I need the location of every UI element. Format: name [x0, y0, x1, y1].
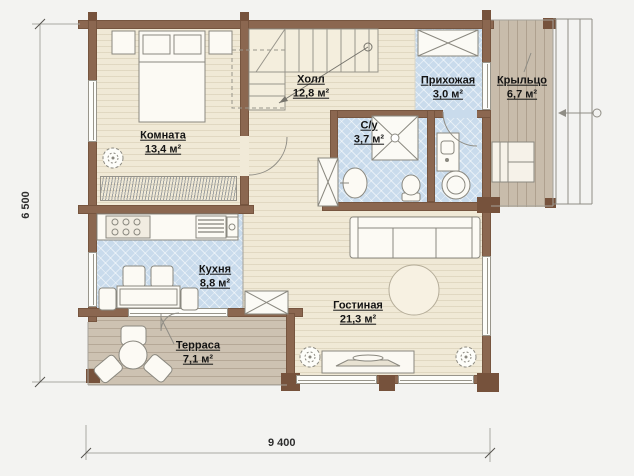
- room-area: 7,1 м²: [176, 353, 220, 367]
- wall: [322, 202, 491, 211]
- log-end: [545, 198, 556, 208]
- wall: [78, 20, 494, 29]
- floor-porch: [491, 20, 553, 207]
- floor-kitchen: [97, 210, 243, 313]
- bathroom-label: С/у 3,7 м²: [354, 119, 384, 148]
- window: [398, 375, 474, 384]
- wall: [427, 110, 435, 202]
- porch-label: Крыльцо 6,7 м²: [497, 74, 547, 103]
- log-end: [379, 375, 395, 391]
- room-name: Терраса: [176, 339, 220, 353]
- room-name: Гостиная: [333, 299, 383, 313]
- window: [482, 256, 491, 336]
- wall: [78, 205, 254, 214]
- hall-label: Холл 12,8 м²: [293, 73, 329, 102]
- entry-label: Прихожая 3,0 м²: [421, 74, 475, 103]
- room-area: 3,7 м²: [354, 133, 384, 147]
- living-label: Гостиная 21,3 м²: [333, 299, 383, 328]
- room-name: Комната: [140, 129, 186, 143]
- terrace-label: Терраса 7,1 м²: [176, 339, 220, 368]
- window: [296, 375, 377, 384]
- log-end: [482, 10, 491, 20]
- window: [88, 80, 97, 142]
- bedroom-label: Комната 13,4 м²: [140, 129, 186, 158]
- terrace-door-opening: [128, 308, 228, 317]
- door-opening: [240, 136, 249, 176]
- room-name: Холл: [293, 73, 329, 87]
- log-end: [477, 373, 499, 392]
- depth-dimension-label: 6 500: [20, 191, 32, 219]
- room-area: 3,0 м²: [421, 88, 475, 102]
- wall: [330, 110, 338, 202]
- log-end: [86, 369, 100, 383]
- door-opening: [443, 110, 477, 118]
- room-area: 12,8 м²: [293, 87, 329, 101]
- room-area: 8,8 м²: [199, 277, 231, 291]
- kitchen-label: Кухня 8,8 м²: [199, 263, 231, 292]
- window: [88, 252, 97, 307]
- log-end: [477, 197, 500, 213]
- radiator-icon: [100, 176, 237, 201]
- room-name: Крыльцо: [497, 74, 547, 88]
- porch-steps-icon: [553, 19, 601, 204]
- width-dimension-label: 9 400: [268, 437, 296, 449]
- log-end: [543, 18, 556, 29]
- room-name: Прихожая: [421, 74, 475, 88]
- wall: [240, 14, 249, 205]
- front-door-opening: [482, 62, 491, 110]
- floor-bathroom: [330, 110, 482, 208]
- log-end: [240, 12, 249, 21]
- room-name: Кухня: [199, 263, 231, 277]
- room-name: С/у: [354, 119, 384, 133]
- floor-plan: Комната 13,4 м² Холл 12,8 м² Прихожая 3,…: [0, 0, 634, 476]
- room-area: 21,3 м²: [333, 313, 383, 327]
- room-area: 13,4 м²: [140, 143, 186, 157]
- room-area: 6,7 м²: [497, 88, 547, 102]
- log-end: [88, 12, 97, 21]
